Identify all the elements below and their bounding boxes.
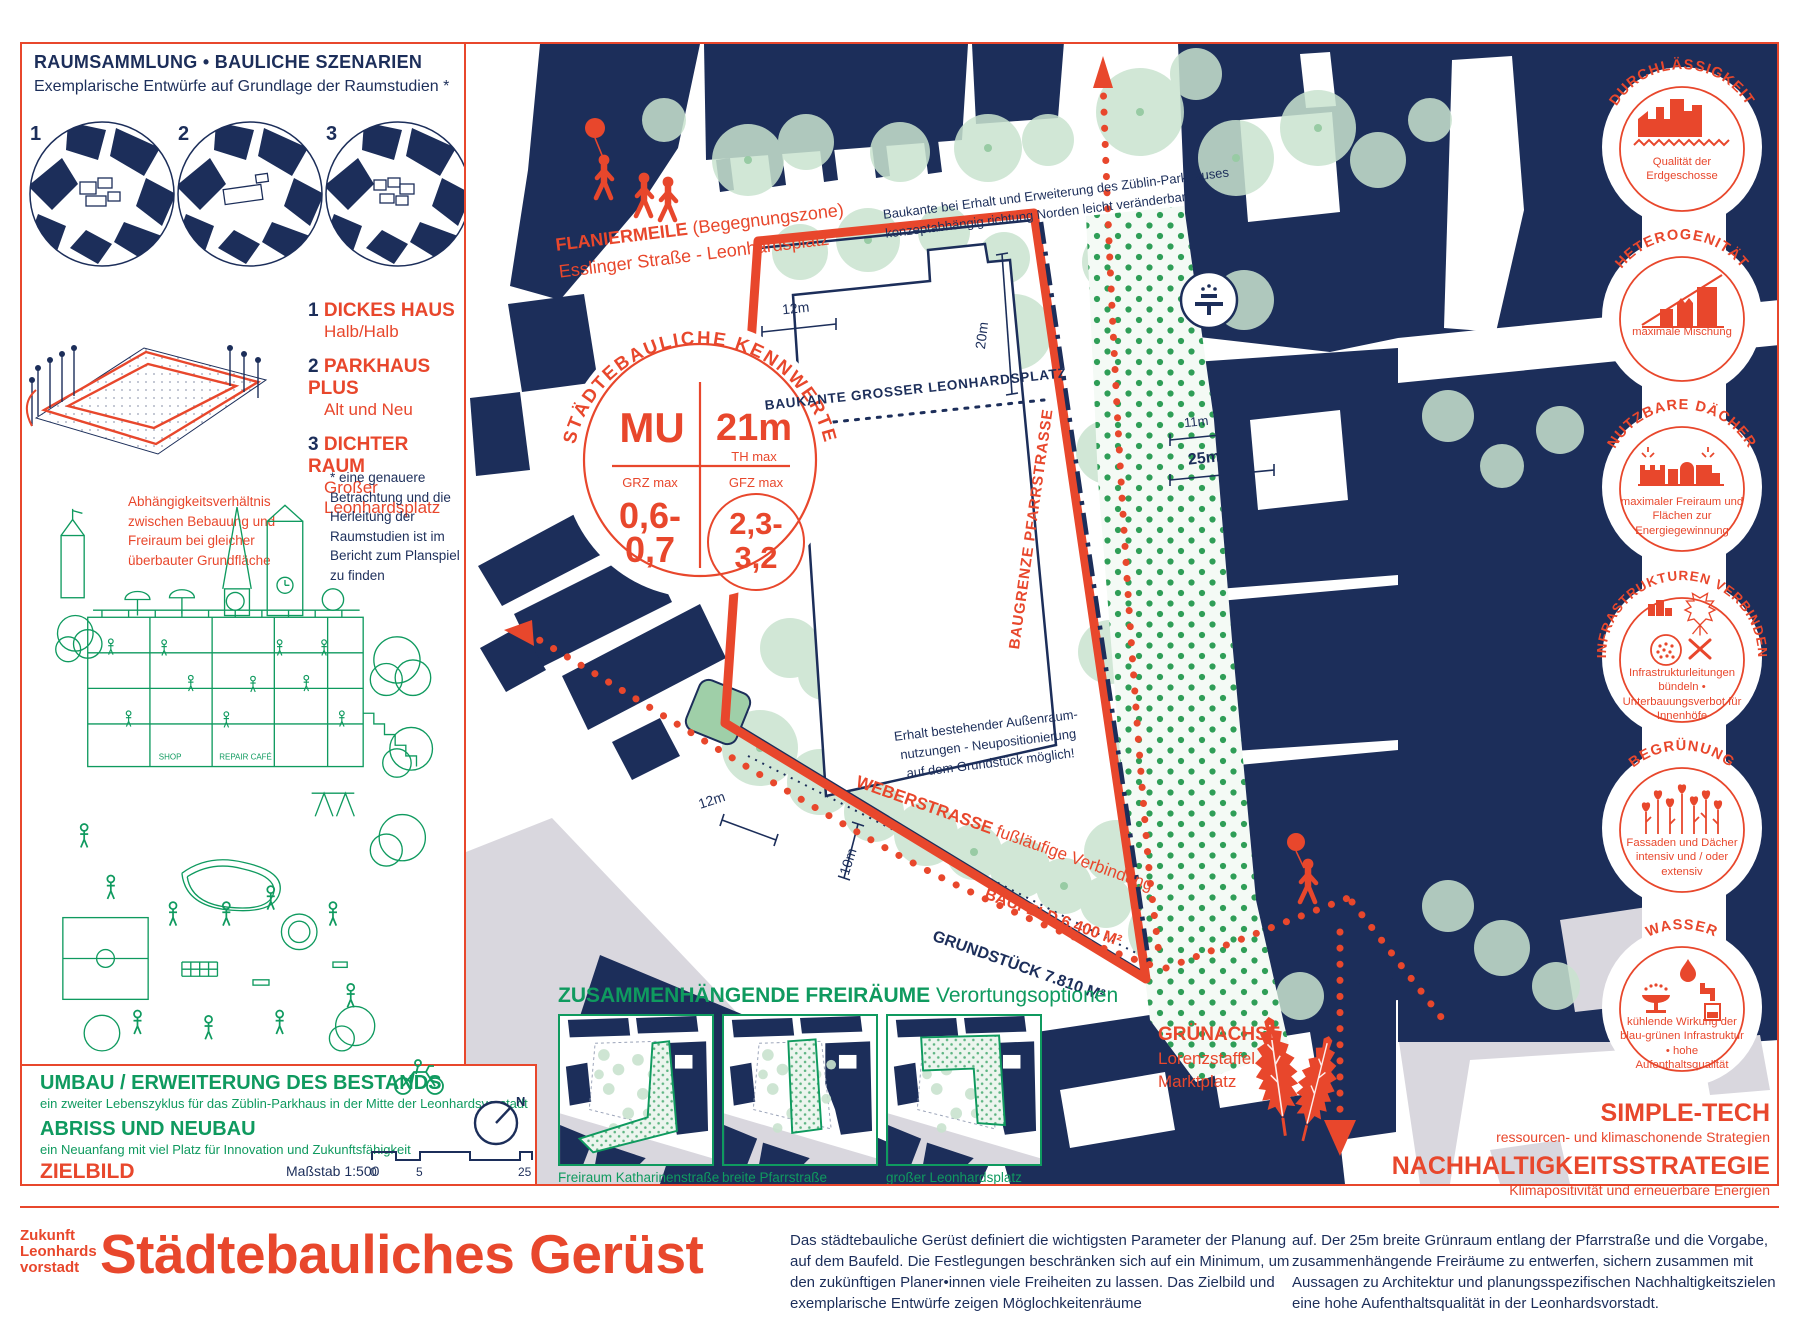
minimap-katharinenstrasse: [558, 1014, 714, 1166]
scenario-circles: 1 2 3: [26, 106, 466, 276]
gfz-label: GFZ max: [729, 475, 784, 490]
svg-text:WASSER: WASSER: [1644, 917, 1721, 941]
site-plan-map: STÄDTEBAULICHE KENNWERTE MU 21m TH max G…: [466, 44, 1777, 1184]
simple-tech-sub: ressourcen- und klimaschonende Strategie…: [1360, 1129, 1770, 1147]
dim-12m-top: 12m: [781, 299, 810, 318]
simple-tech-title: SIMPLE-TECH: [1360, 1098, 1770, 1129]
gfz-value-2: 3,2: [734, 540, 777, 575]
dim-11m: 11m: [1183, 413, 1209, 430]
badge-infrastrukturen: INFRASTRUKTUREN VERBINDEN: [1597, 558, 1767, 748]
badge-caption: maximaler Freiraum und Flächen zur Energ…: [1619, 495, 1745, 538]
footer-title: Städtebauliches Gerüst: [100, 1222, 703, 1286]
minimap-caption-3: großer Leonhardsplatz: [886, 1170, 1022, 1185]
grz-value-2: 0,7: [625, 529, 675, 570]
axonometric-sketch: [24, 268, 276, 466]
fountain-icon: [1181, 272, 1237, 328]
badge-heterogenitaet: HETEROGENITÄT maximale Mischung: [1597, 217, 1767, 407]
compass-icon: N: [468, 1092, 532, 1148]
panel-title: RAUMSAMMLUNG • BAULICHE SZENARIEN: [34, 52, 422, 73]
svg-text:2: 2: [178, 123, 189, 145]
th-label: TH max: [731, 449, 777, 464]
badge-caption: Fassaden und Dächer intensiv und / oder …: [1619, 836, 1745, 879]
freiraeume-heading: ZUSAMMENHÄNGENDE FREIRÄUME Verortungsopt…: [558, 984, 1118, 1008]
svg-text:0: 0: [370, 1165, 377, 1179]
svg-text:BEGRÜNUNG: BEGRÜNUNG: [1626, 737, 1738, 771]
massstab-label: Maßstab 1:500: [286, 1163, 379, 1179]
badge-caption: Qualität der Erdgeschosse: [1619, 155, 1745, 184]
badge-caption: kühlende Wirkung der blau-grünen Infrast…: [1619, 1015, 1745, 1073]
minimap-caption-1: Freiraum Katharinenstraße: [558, 1170, 719, 1185]
badge-durchlaessigkeit: DURCHLÄSSIGKEIT Qualität der Erdgeschoss…: [1597, 47, 1767, 237]
shop-label: SHOP: [159, 752, 182, 761]
panel-subtitle: Exemplarische Entwürfe auf Grundlage der…: [34, 78, 449, 96]
poster: STÄDTEBAULICHE KENNWERTE MU 21m TH max G…: [0, 0, 1800, 1320]
badge-nutzbare-daecher: NUTZBARE DÄCHER maximaler Freiraum und F…: [1597, 387, 1767, 577]
strategy-title: NACHHALTIGKEITSSTRATEGIE: [1360, 1151, 1770, 1182]
badge-caption: maximale Mischung: [1619, 325, 1745, 339]
sustainability-block: SIMPLE-TECH ressourcen- und klimaschonen…: [1360, 1098, 1770, 1200]
badge-begruenung: BEGRÜNUNG Fassaden und Däche: [1597, 728, 1767, 918]
abriss-title: ABRISS UND NEUBAU: [40, 1118, 256, 1141]
grz-label: GRZ max: [622, 475, 678, 490]
svg-text:N: N: [516, 1094, 525, 1109]
gruenachse-label: GRÜNACHSE Lorenzstaffel - Marktplatz: [1158, 1022, 1280, 1094]
th-value: 21m: [716, 407, 792, 449]
footer-rule: [20, 1206, 1779, 1208]
minimap-pfarrstrasse: [722, 1014, 878, 1166]
strategy-sub: Klimapositivität und erneuerbare Energie…: [1360, 1182, 1770, 1200]
repair-cafe-label: REPAIR CAFÉ: [219, 752, 272, 761]
panel-divider: [464, 42, 466, 1064]
footer-col2: auf. Der 25m breite Grünraum entlang der…: [1292, 1230, 1779, 1314]
umbau-sub: ein zweiter Lebenszyklus für das Züblin-…: [40, 1096, 528, 1111]
footer-col1: Das städtebauliche Gerüst definiert die …: [790, 1230, 1295, 1314]
svg-text:1: 1: [30, 123, 41, 145]
dim-25m: 25m: [1187, 448, 1221, 469]
scale-bar: 0 5 25: [370, 1142, 535, 1182]
minimap-leonhardsplatz: [886, 1014, 1042, 1166]
mu-value: MU: [619, 404, 684, 451]
abriss-sub: ein Neuanfang mit viel Platz für Innovat…: [40, 1142, 411, 1157]
svg-text:3: 3: [326, 123, 337, 145]
svg-text:25: 25: [518, 1165, 532, 1179]
gfz-value-1: 2,3-: [729, 506, 782, 541]
zielbild-label: ZIELBILD: [40, 1160, 135, 1184]
badge-wasser: WASSER kühlende Wirkung der blau-grünen …: [1597, 907, 1767, 1097]
footer-logo: ZukunftLeonhardsvorstadt: [20, 1228, 97, 1275]
umbau-title: UMBAU / ERWEITERUNG DES BESTANDS: [40, 1072, 442, 1095]
badge-caption: Infrastrukturleitungen bündeln • Unterba…: [1619, 666, 1745, 724]
minimap-caption-2: breite Pfarrstraße: [722, 1170, 827, 1185]
green-illustration: SHOP REPAIR CAFÉ: [24, 500, 466, 1058]
dim-20m: 20m: [972, 321, 991, 350]
svg-text:5: 5: [416, 1165, 423, 1179]
bicycle-icon: [392, 1056, 448, 1098]
